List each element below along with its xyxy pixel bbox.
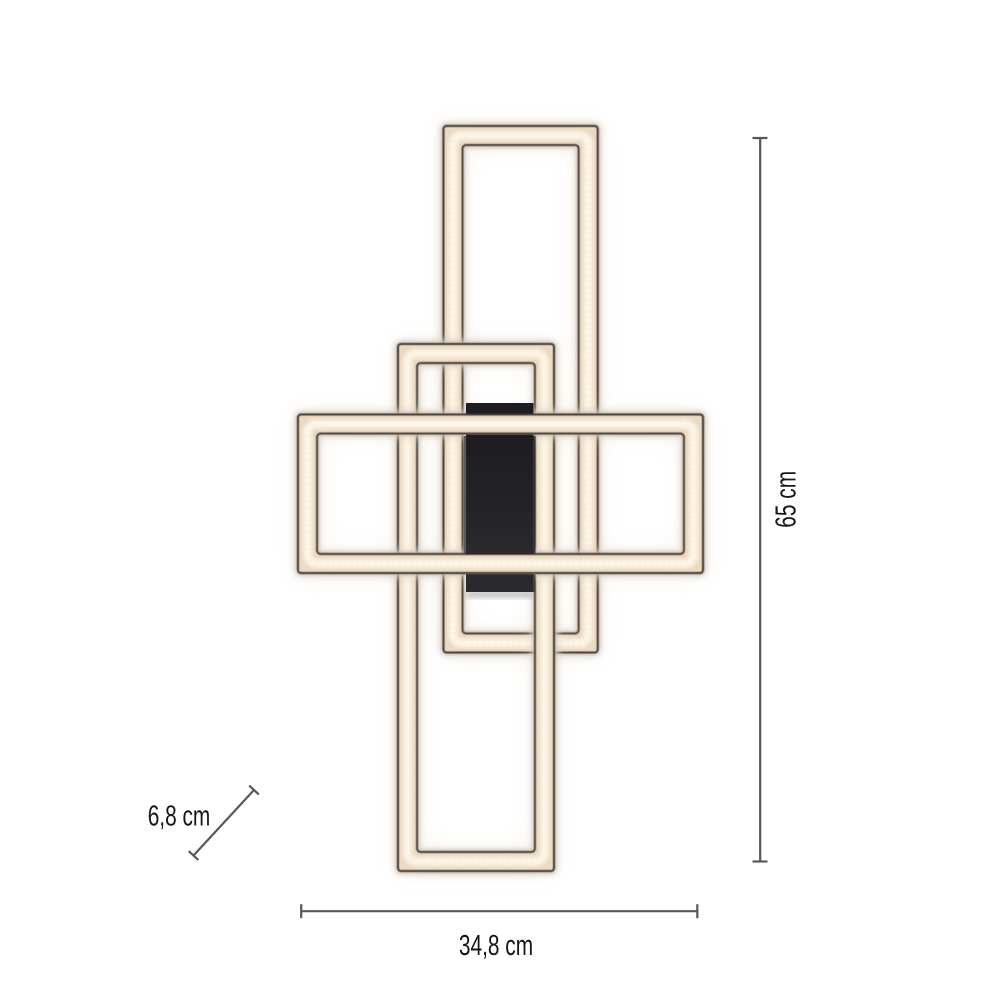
svg-text:65 cm: 65 cm [770,471,802,528]
svg-text:34,8 cm: 34,8 cm [459,930,533,962]
svg-text:6,8 cm: 6,8 cm [148,800,211,832]
